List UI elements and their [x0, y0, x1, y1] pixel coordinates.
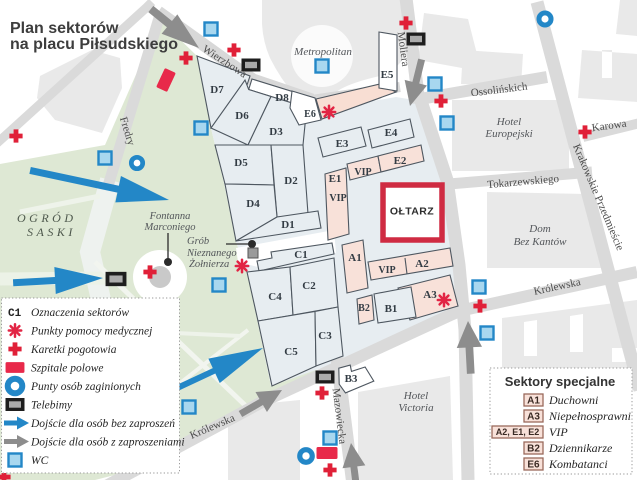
svg-text:VIP: VIP [354, 167, 371, 178]
svg-text:Grób: Grób [187, 236, 209, 247]
svg-text:OGRÓD: OGRÓD [17, 211, 77, 225]
svg-text:B2: B2 [358, 303, 370, 314]
svg-text:D6: D6 [235, 110, 249, 122]
svg-text:B2: B2 [527, 444, 540, 455]
svg-text:E1: E1 [329, 173, 342, 185]
svg-text:C4: C4 [268, 291, 282, 303]
svg-text:Marconiego: Marconiego [144, 222, 196, 233]
svg-text:Duchowni: Duchowni [548, 393, 598, 407]
svg-text:A2: A2 [415, 258, 429, 270]
svg-text:D4: D4 [246, 198, 260, 210]
svg-text:Oznaczenia sektorów: Oznaczenia sektorów [31, 307, 129, 319]
svg-text:C1: C1 [8, 308, 22, 320]
svg-text:D2: D2 [284, 175, 298, 187]
svg-text:Dojście dla osób bez zaproszeń: Dojście dla osób bez zaproszeń [30, 418, 175, 430]
svg-text:Europejski: Europejski [484, 128, 532, 140]
svg-text:Dziennikarze: Dziennikarze [548, 441, 613, 455]
svg-text:B1: B1 [385, 303, 398, 315]
svg-text:Punty osób zaginionych: Punty osób zaginionych [30, 381, 141, 393]
svg-text:Metropolitan: Metropolitan [293, 46, 352, 58]
svg-text:na placu Piłsudskiego: na placu Piłsudskiego [10, 36, 178, 53]
svg-text:Karetki pogotowia: Karetki pogotowia [30, 344, 117, 356]
svg-text:C3: C3 [318, 330, 332, 342]
svg-text:E4: E4 [385, 127, 398, 139]
svg-text:D5: D5 [234, 157, 248, 169]
svg-text:Plan sektorów: Plan sektorów [10, 20, 119, 37]
svg-text:Telebimy: Telebimy [31, 400, 73, 412]
svg-text:VIP: VIP [549, 425, 568, 439]
svg-text:Hotel: Hotel [403, 390, 428, 402]
svg-text:Victoria: Victoria [398, 402, 434, 414]
svg-text:D8: D8 [275, 92, 289, 104]
svg-text:VIP: VIP [329, 193, 346, 204]
svg-text:Dom: Dom [528, 223, 550, 235]
svg-text:A3: A3 [527, 412, 540, 423]
svg-text:A2, E1, E2: A2, E1, E2 [496, 427, 540, 437]
svg-text:Punkty pomocy medycznej: Punkty pomocy medycznej [30, 326, 152, 338]
svg-text:Sektory specjalne: Sektory specjalne [505, 374, 616, 389]
svg-text:Niepełnosprawni: Niepełnosprawni [548, 409, 631, 423]
svg-text:Bez Kantów: Bez Kantów [514, 236, 568, 248]
svg-text:Dojście dla osób z zaproszenia: Dojście dla osób z zaproszeniami [30, 437, 185, 449]
svg-text:B3: B3 [345, 373, 358, 385]
svg-text:E5: E5 [381, 69, 394, 81]
svg-text:Szpitale polowe: Szpitale polowe [31, 363, 104, 375]
svg-text:E2: E2 [394, 155, 407, 167]
svg-text:Nieznanego: Nieznanego [186, 248, 237, 259]
svg-text:D3: D3 [269, 126, 283, 138]
svg-text:E6: E6 [304, 109, 316, 120]
svg-text:A3: A3 [423, 289, 437, 301]
svg-text:C5: C5 [284, 346, 298, 358]
svg-text:WC: WC [31, 455, 49, 467]
svg-text:C1: C1 [294, 249, 307, 261]
svg-text:VIP: VIP [378, 265, 395, 276]
svg-text:C2: C2 [302, 280, 316, 292]
svg-text:E3: E3 [336, 138, 349, 150]
svg-text:Hotel: Hotel [496, 116, 521, 128]
svg-text:Fontanna: Fontanna [149, 211, 191, 222]
svg-text:A1: A1 [527, 396, 540, 407]
svg-text:Żołnierza: Żołnierza [189, 258, 229, 270]
svg-text:A1: A1 [348, 252, 361, 264]
svg-text:D7: D7 [210, 84, 224, 96]
svg-text:OŁTARZ: OŁTARZ [390, 206, 434, 218]
svg-text:Kombatanci: Kombatanci [548, 457, 608, 471]
svg-text:SASKI: SASKI [27, 225, 76, 239]
svg-text:D1: D1 [281, 219, 294, 231]
svg-text:E6: E6 [527, 460, 540, 471]
